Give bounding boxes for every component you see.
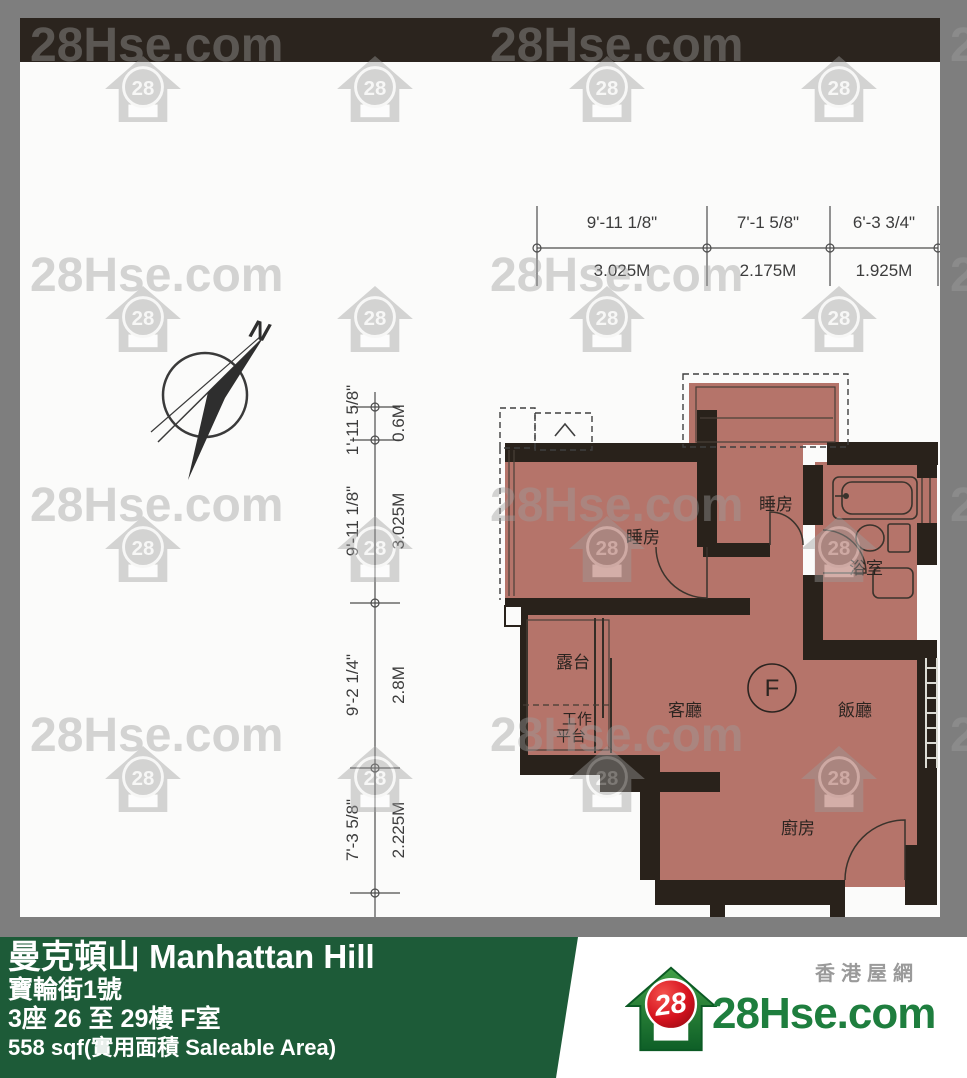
floorplan-page: 28 [0, 0, 967, 1078]
compass-north-label: N [246, 313, 274, 348]
ac-vent-mark [555, 424, 575, 436]
label-balcony: 露台 [556, 653, 590, 672]
logo-site-name: 28Hse.com [712, 989, 935, 1039]
property-info-panel: 曼克頓山 Manhattan Hill 寶輪街1號 3座 26 至 29樓 F室… [0, 937, 640, 1078]
label-bedroom-main: 睡房 [759, 495, 793, 514]
label-dining: 飯廳 [838, 701, 872, 720]
watermark-text: 28Hse.com [950, 478, 967, 533]
site-logo[interactable]: 28 28Hse.com 香港屋網 [600, 937, 967, 1078]
label-utility-2: 平台 [556, 728, 586, 745]
watermark-text: 28Hse.com [950, 708, 967, 763]
floor-plan-drawing: 28 [20, 18, 940, 917]
label-bedroom-left: 睡房 [626, 528, 660, 547]
info-footer: 曼克頓山 Manhattan Hill 寶輪街1號 3座 26 至 29樓 F室… [0, 937, 967, 1078]
estate-name: 曼克頓山 Manhattan Hill [8, 939, 640, 976]
dim-left-1-metric: 0.6M [389, 404, 408, 442]
dim-top-2-metric: 2.175M [740, 261, 797, 280]
logo-badge: 28 [651, 987, 688, 1023]
unit-letter: F [765, 675, 780, 702]
dim-top-1-metric: 3.025M [594, 261, 651, 280]
watermark-text: 28Hse.com [950, 18, 967, 73]
label-utility-1: 工作 [562, 711, 592, 728]
label-kitchen: 廚房 [781, 818, 815, 838]
estate-address: 寶輪街1號 [8, 976, 640, 1006]
dim-top-2-imperial: 7'-1 5/8" [737, 213, 799, 232]
watermark-text: 28Hse.com [950, 248, 967, 303]
label-living: 客廳 [668, 701, 702, 720]
balcony-notch [505, 606, 522, 626]
area-info: 558 sqf(實用面積 Saleable Area) [8, 1035, 640, 1062]
top-dimension-labels: 9'-11 1/8" 7'-1 5/8" 6'-3 3/4" 3.025M 2.… [587, 213, 915, 280]
dim-left-2-metric: 3.025M [389, 493, 408, 550]
dim-top-3-imperial: 6'-3 3/4" [853, 213, 915, 232]
logo-site-name-cn: 香港屋網 [815, 957, 919, 986]
dim-left-4-metric: 2.225M [389, 802, 408, 859]
dim-left-3-metric: 2.8M [389, 666, 408, 704]
dim-top-1-imperial: 9'-11 1/8" [587, 213, 657, 232]
dim-top-3-metric: 1.925M [856, 261, 913, 280]
dim-left-3-imperial: 9'-2 1/4" [343, 654, 362, 716]
compass-icon: N [151, 313, 274, 480]
scanned-floorplan-sheet: 28 [20, 18, 940, 917]
dim-left-4-imperial: 7'-3 5/8" [343, 799, 362, 861]
right-wall-recess [917, 565, 940, 640]
unit-info: 3座 26 至 29樓 F室 [8, 1005, 640, 1035]
bathtub-window-bay [917, 478, 937, 523]
dim-left-1-imperial: 1'-11 5/8" [343, 385, 362, 455]
label-bathroom: 浴室 [849, 559, 883, 578]
dim-left-2-imperial: 9'-11 1/8" [343, 486, 362, 556]
logo-house-icon: 28 [625, 961, 717, 1055]
